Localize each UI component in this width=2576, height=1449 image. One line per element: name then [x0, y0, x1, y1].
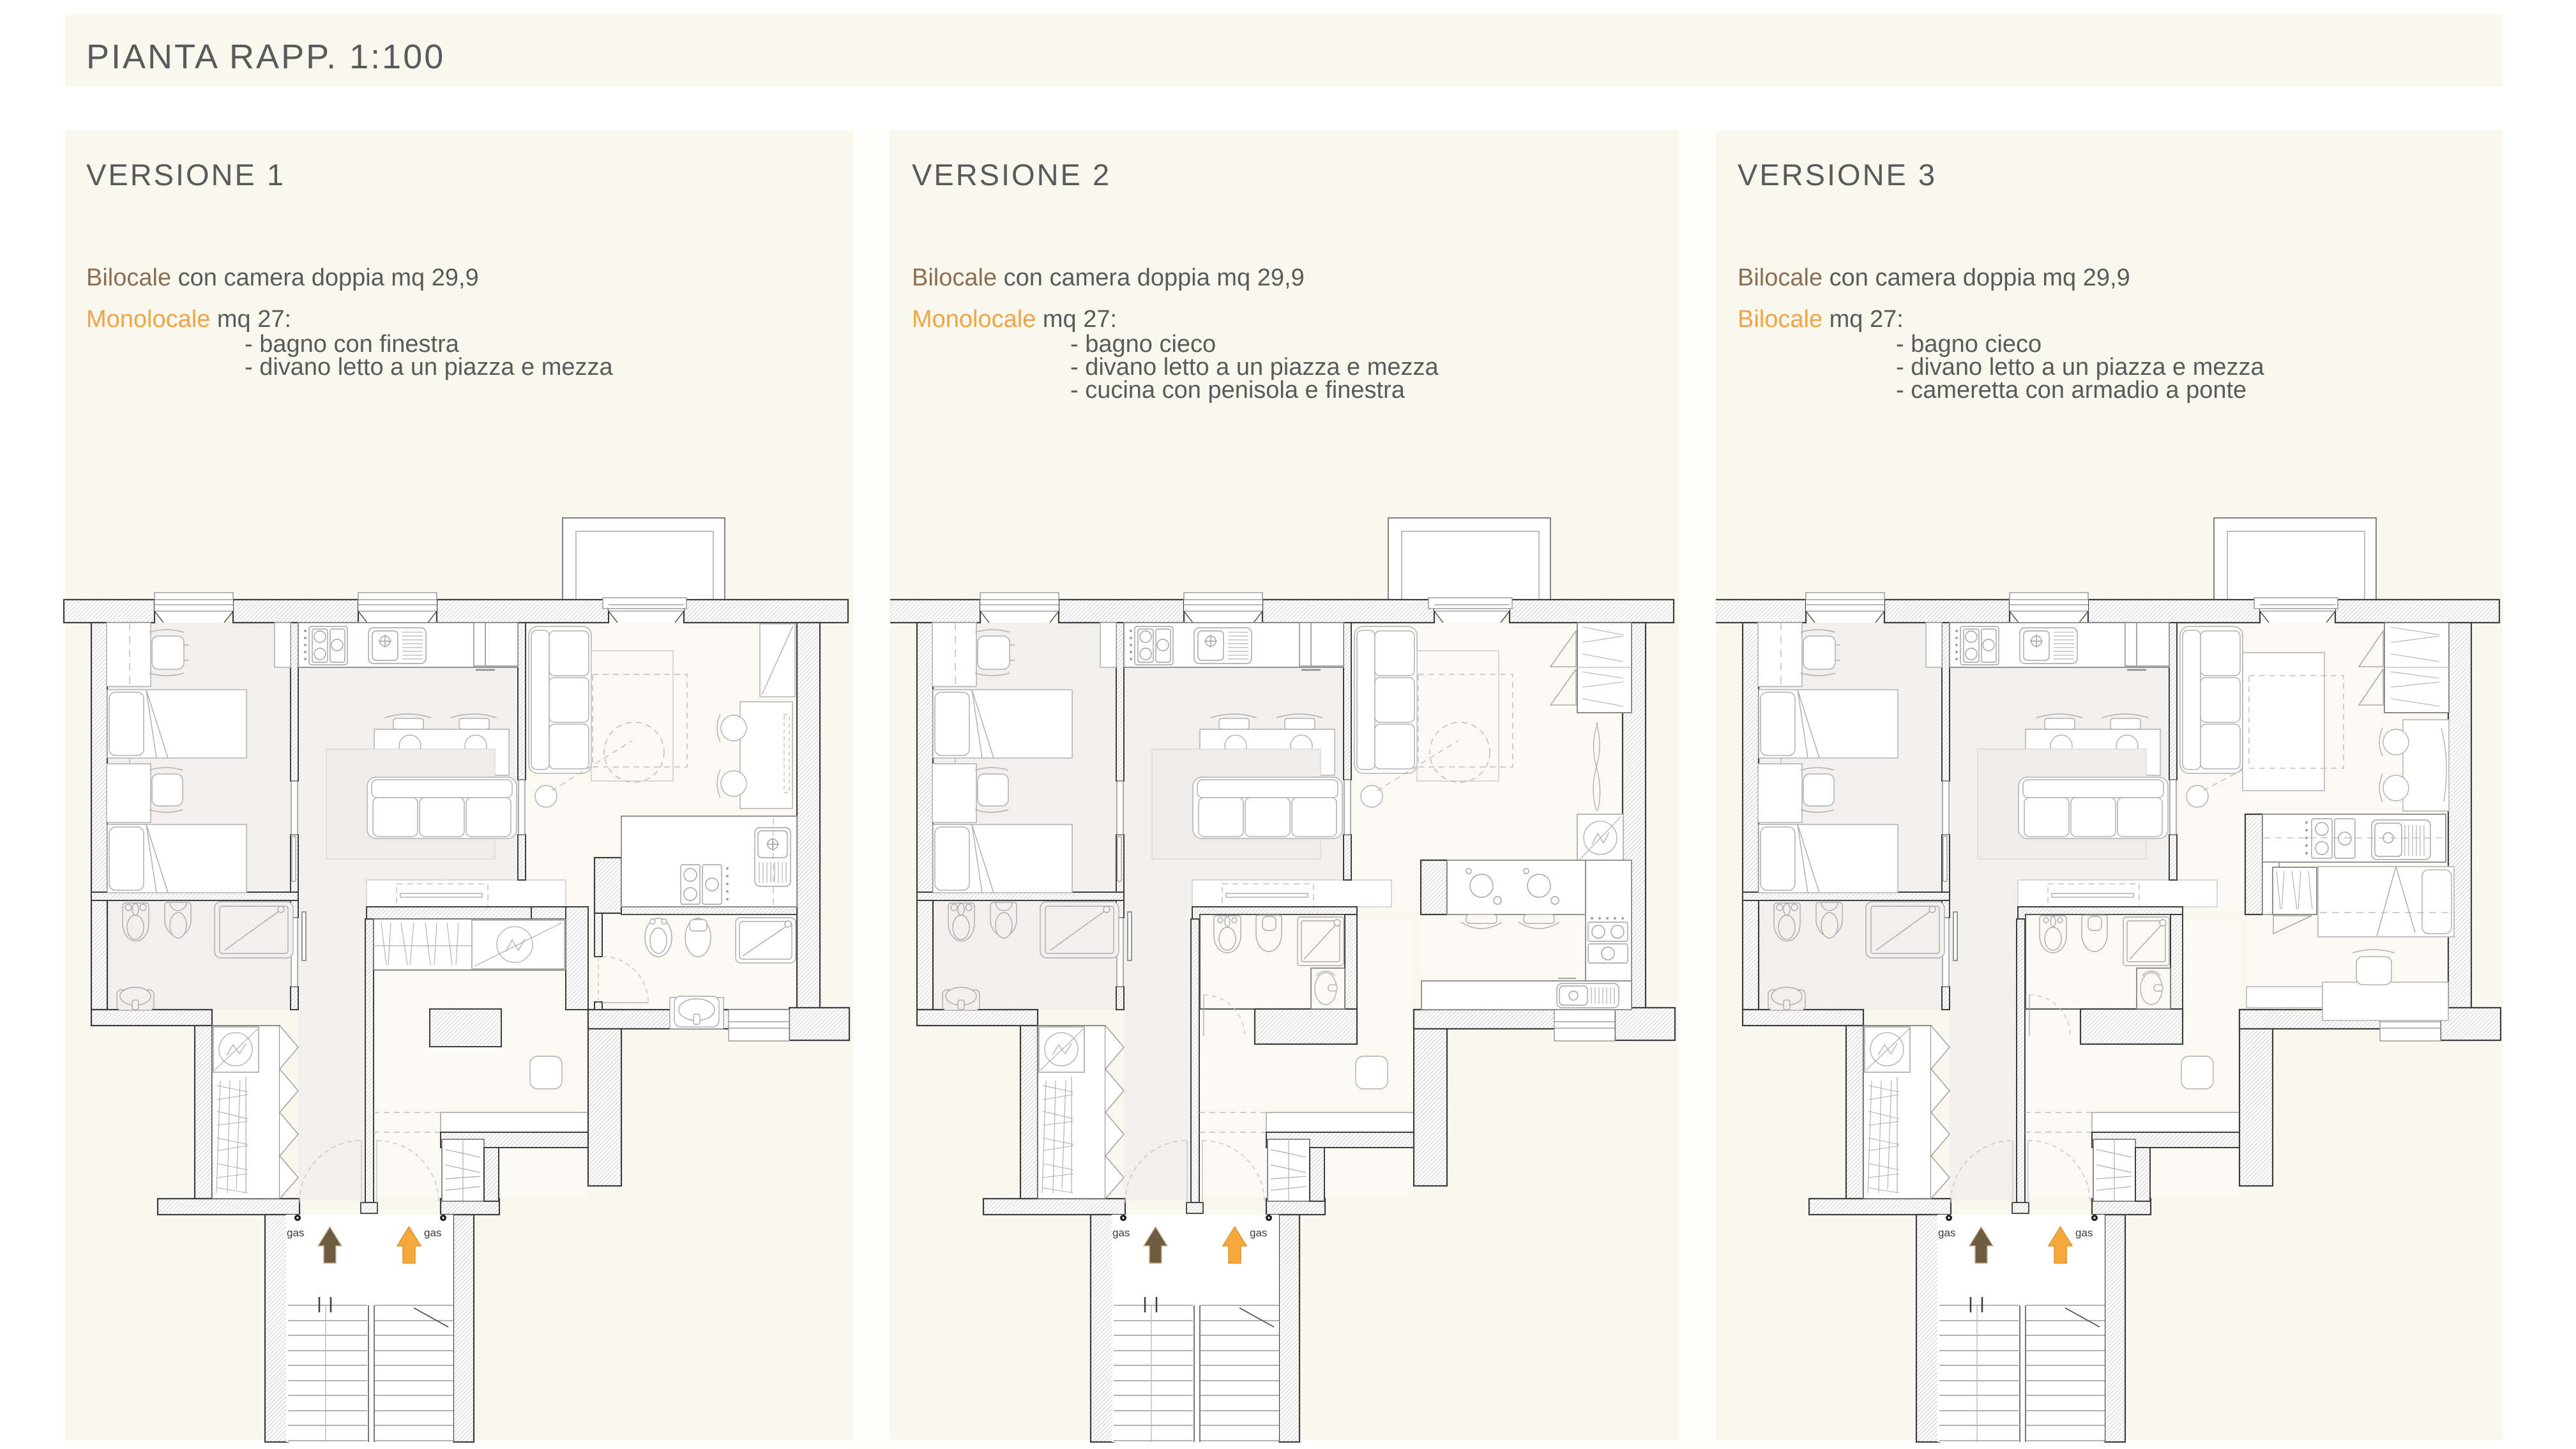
svg-text:Monolocale mq 27:: Monolocale mq 27: — [86, 306, 291, 333]
svg-text:Bilocale mq 27:: Bilocale mq 27: — [1738, 306, 1904, 333]
svg-text:- cameretta con armadio a pont: - cameretta con armadio a ponte — [1896, 377, 2246, 404]
svg-text:Bilocale con camera doppia mq: Bilocale con camera doppia mq 29,9 — [86, 264, 479, 291]
svg-text:VERSIONE 1: VERSIONE 1 — [86, 158, 285, 192]
svg-text:- cucina con penisola e finest: - cucina con penisola e finestra — [1070, 377, 1405, 404]
svg-text:VERSIONE 2: VERSIONE 2 — [912, 158, 1111, 192]
svg-text:Bilocale con camera doppia mq: Bilocale con camera doppia mq 29,9 — [1738, 264, 2130, 291]
svg-text:- divano letto a un piazza e m: - divano letto a un piazza e mezza — [245, 354, 614, 381]
svg-text:VERSIONE 3: VERSIONE 3 — [1738, 158, 1937, 192]
svg-text:Monolocale mq 27:: Monolocale mq 27: — [912, 306, 1117, 333]
svg-text:Bilocale con camera doppia mq: Bilocale con camera doppia mq 29,9 — [912, 264, 1305, 291]
svg-text:PIANTA RAPP. 1:100: PIANTA RAPP. 1:100 — [86, 38, 445, 76]
